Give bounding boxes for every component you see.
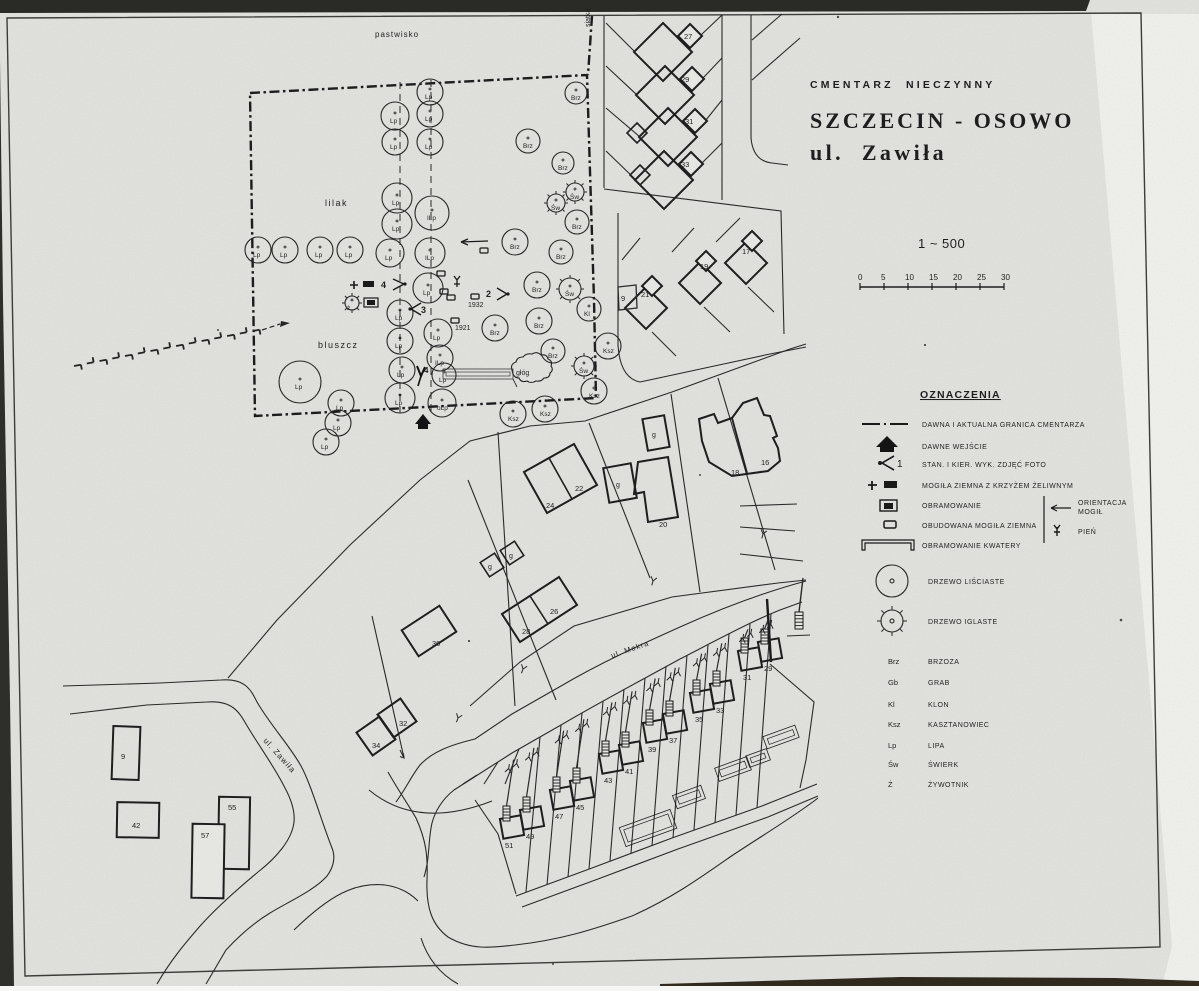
svg-text:Brz: Brz [888, 657, 900, 666]
svg-text:35: 35 [695, 715, 703, 724]
svg-text:51: 51 [505, 841, 513, 850]
svg-text:OBUDOWANA MOGIŁA ZIEMNA: OBUDOWANA MOGIŁA ZIEMNA [922, 523, 1037, 530]
svg-text:3: 3 [421, 305, 426, 315]
svg-text:28: 28 [522, 627, 530, 636]
svg-text:ŻYWOTNIK: ŻYWOTNIK [928, 780, 969, 789]
svg-text:20: 20 [953, 273, 962, 282]
svg-text:5: 5 [881, 273, 886, 282]
svg-text:Lp: Lp [425, 116, 433, 123]
svg-text:ILp: ILp [425, 255, 434, 262]
svg-text:Lp: Lp [280, 252, 288, 259]
svg-text:Lp: Lp [395, 400, 403, 407]
svg-text:47: 47 [555, 812, 563, 821]
svg-text:16: 16 [761, 458, 769, 467]
svg-text:Św: Św [888, 760, 899, 769]
svg-text:MOGIŁ: MOGIŁ [1078, 509, 1103, 516]
svg-text:lilak: lilak [325, 198, 348, 208]
svg-text:17: 17 [742, 247, 750, 256]
svg-text:43: 43 [604, 776, 612, 785]
svg-text:Ksz: Ksz [540, 411, 551, 418]
svg-text:Ksz: Ksz [603, 348, 614, 355]
svg-text:Lp: Lp [395, 315, 403, 322]
svg-text:41: 41 [625, 767, 633, 776]
svg-text:1 ~ 500: 1 ~ 500 [918, 236, 965, 251]
svg-text:27: 27 [684, 32, 692, 41]
svg-text:Lp: Lp [397, 372, 405, 379]
svg-text:Lp: Lp [385, 255, 393, 262]
svg-text:PIEŃ: PIEŃ [1078, 527, 1096, 536]
svg-text:ż: ż [347, 305, 350, 312]
svg-text:10: 10 [905, 273, 914, 282]
svg-text:SZCZECIN - OSOWO: SZCZECIN - OSOWO [810, 108, 1074, 133]
svg-text:1921: 1921 [455, 325, 471, 332]
svg-text:Brz: Brz [548, 353, 558, 360]
svg-text:Brz: Brz [490, 330, 500, 337]
svg-text:20: 20 [659, 520, 667, 529]
svg-text:DAWNA I AKTUALNA GRANICA CMENT: DAWNA I AKTUALNA GRANICA CMENTARZA [922, 422, 1085, 429]
svg-text:g: g [488, 564, 492, 571]
svg-text:OBRAMOWANIE: OBRAMOWANIE [922, 503, 981, 510]
svg-text:Lp: Lp [392, 226, 400, 233]
svg-text:Lp: Lp [333, 425, 341, 432]
svg-text:57: 57 [201, 831, 209, 840]
svg-text:CMENTARZ NIECZYNNY: CMENTARZ NIECZYNNY [810, 79, 995, 91]
svg-text:18: 18 [731, 468, 739, 477]
svg-text:33: 33 [716, 706, 724, 715]
svg-text:9: 9 [121, 752, 125, 761]
svg-text:Lp: Lp [425, 144, 433, 151]
svg-text:31: 31 [685, 117, 693, 126]
svg-text:KASZTANOWIEC: KASZTANOWIEC [928, 722, 989, 729]
svg-text:32: 32 [399, 719, 407, 728]
svg-text:2: 2 [486, 289, 491, 299]
svg-text:Brz: Brz [571, 95, 581, 102]
svg-text:OBRAMOWANIE KWATERY: OBRAMOWANIE KWATERY [922, 543, 1021, 550]
svg-text:49: 49 [526, 832, 534, 841]
svg-text:DAWNE WEJŚCIE: DAWNE WEJŚCIE [922, 442, 987, 451]
svg-text:Ż: Ż [888, 780, 893, 789]
svg-text:45: 45 [576, 803, 584, 812]
svg-text:STAN. I KIER. WYK. ZDJĘĆ FOTO: STAN. I KIER. WYK. ZDJĘĆ FOTO [922, 460, 1046, 469]
svg-text:Lp: Lp [390, 118, 398, 125]
svg-text:31: 31 [743, 673, 751, 682]
svg-text:ORIENTACJA: ORIENTACJA [1078, 500, 1127, 507]
svg-text:Brz: Brz [572, 224, 582, 231]
svg-text:Lp: Lp [433, 335, 441, 342]
svg-text:Lp: Lp [423, 290, 431, 297]
svg-text:Lp: Lp [425, 94, 433, 101]
svg-text:4: 4 [381, 280, 386, 290]
svg-text:g: g [509, 553, 513, 560]
svg-text:ILp: ILp [427, 215, 436, 222]
svg-text:Lp: Lp [392, 200, 400, 207]
svg-text:42: 42 [132, 821, 140, 830]
svg-text:Brz: Brz [523, 143, 533, 150]
svg-text:GRAB: GRAB [928, 680, 950, 687]
svg-text:15: 15 [929, 273, 938, 282]
svg-text:LIPA: LIPA [928, 743, 945, 750]
svg-text:30: 30 [1001, 273, 1010, 282]
svg-text:DRZEWO IGLASTE: DRZEWO IGLASTE [928, 619, 998, 626]
svg-text:0: 0 [858, 273, 863, 282]
svg-text:g: g [616, 482, 620, 489]
svg-text:34: 34 [372, 741, 380, 750]
svg-text:Lp: Lp [315, 252, 323, 259]
svg-text:Ksz: Ksz [888, 720, 901, 729]
svg-text:26: 26 [550, 607, 558, 616]
svg-text:BRZOZA: BRZOZA [928, 659, 959, 666]
svg-text:33: 33 [681, 160, 689, 169]
svg-text:Ksz: Ksz [589, 393, 600, 400]
svg-text:Św: Św [565, 289, 574, 298]
svg-text:Lp: Lp [336, 405, 344, 412]
svg-text:Kl: Kl [888, 700, 895, 709]
svg-text:37: 37 [669, 736, 677, 745]
svg-text:Św: Św [579, 366, 588, 375]
svg-text:19: 19 [700, 262, 708, 271]
svg-text:siątka: siątka [585, 9, 592, 27]
svg-text:Lp: Lp [390, 144, 398, 151]
svg-text:4: 4 [424, 366, 429, 375]
svg-text:1: 1 [897, 459, 903, 470]
svg-text:Lp: Lp [253, 252, 261, 259]
svg-text:Lp: Lp [888, 741, 896, 750]
svg-text:Kl: Kl [584, 311, 590, 318]
svg-text:g: g [652, 432, 656, 439]
svg-text:21: 21 [641, 290, 649, 299]
svg-text:Brz: Brz [532, 287, 542, 294]
svg-text:Św: Św [570, 192, 579, 201]
svg-text:KLON: KLON [928, 702, 949, 709]
svg-text:39: 39 [648, 745, 656, 754]
svg-text:głóg: głóg [516, 370, 529, 377]
svg-text:1932: 1932 [468, 302, 484, 309]
svg-text:Lp: Lp [395, 343, 403, 350]
svg-text:Ksz: Ksz [508, 416, 519, 423]
svg-text:Św: Św [551, 203, 560, 212]
svg-text:bluszcz: bluszcz [318, 340, 359, 350]
svg-text:Brz: Brz [534, 323, 544, 330]
svg-text:Brz: Brz [510, 244, 520, 251]
svg-text:9: 9 [621, 294, 625, 303]
svg-text:Brz: Brz [556, 254, 566, 261]
svg-text:MOGIŁA ZIEMNA Z KRZYŻEM ŻELIWN: MOGIŁA ZIEMNA Z KRZYŻEM ŻELIWNYM [922, 481, 1073, 490]
svg-text:Gb: Gb [888, 678, 898, 687]
svg-text:29: 29 [681, 75, 689, 84]
svg-text:Lp: Lp [345, 252, 353, 259]
svg-text:oLp: oLp [437, 405, 448, 412]
svg-text:Lp: Lp [295, 384, 303, 391]
svg-text:30: 30 [432, 639, 440, 648]
svg-text:ŚWIERK: ŚWIERK [928, 760, 959, 769]
svg-text:ul. Zawiła: ul. Zawiła [810, 140, 947, 165]
svg-text:DRZEWO LIŚCIASTE: DRZEWO LIŚCIASTE [928, 577, 1005, 586]
svg-text:Lp: Lp [321, 444, 329, 451]
svg-text:pastwisko: pastwisko [375, 30, 419, 39]
svg-text:22: 22 [575, 484, 583, 493]
svg-text:Brz: Brz [558, 165, 568, 172]
svg-text:55: 55 [228, 803, 236, 812]
svg-text:OZNACZENIA: OZNACZENIA [920, 389, 1001, 401]
svg-text:ILp: ILp [435, 360, 444, 367]
svg-text:24: 24 [546, 501, 554, 510]
svg-text:29: 29 [764, 664, 772, 673]
svg-text:25: 25 [977, 273, 986, 282]
